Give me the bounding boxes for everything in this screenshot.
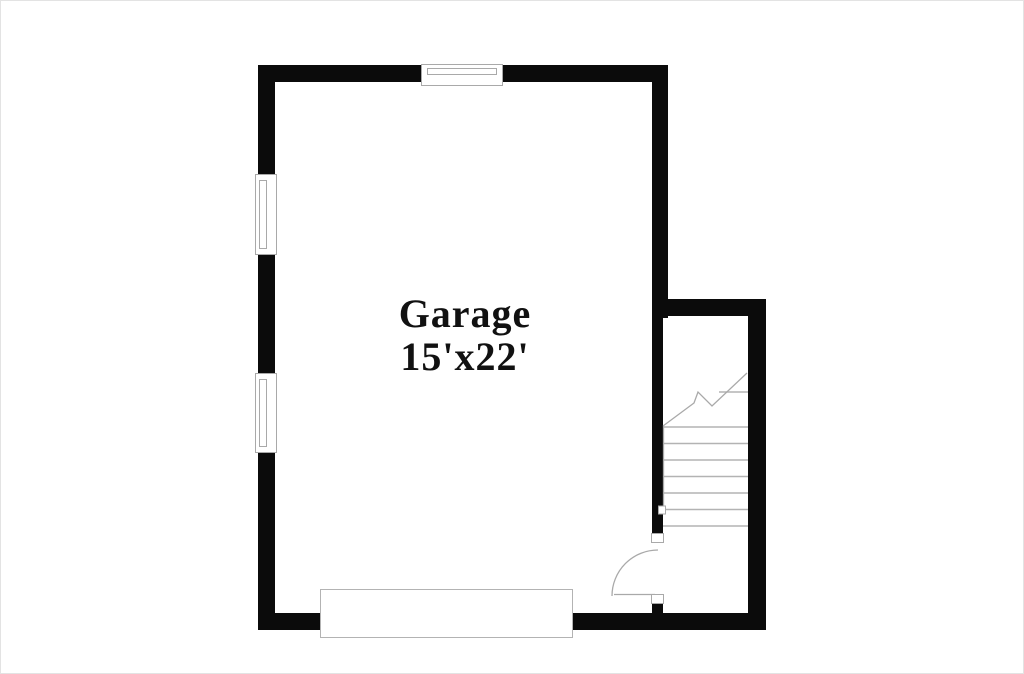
door-swing-arc bbox=[612, 550, 658, 596]
window-glass-line bbox=[259, 379, 267, 447]
wall-door-stub bbox=[652, 603, 663, 613]
wall-stairwell-left bbox=[652, 316, 663, 534]
wall-right-garage bbox=[652, 65, 668, 318]
door-swing bbox=[612, 550, 658, 596]
floor-plan: Garage 15'x22' bbox=[0, 0, 1024, 674]
wall-stairwell-right bbox=[748, 299, 766, 630]
room-dimensions: 15'x22' bbox=[315, 336, 615, 378]
stair-break-line bbox=[663, 373, 747, 426]
room-label: Garage 15'x22' bbox=[315, 292, 615, 378]
garage-door bbox=[320, 589, 573, 638]
door-jamb-top bbox=[651, 533, 664, 543]
window-glass-line bbox=[427, 68, 497, 75]
window-left-wall-lower bbox=[255, 373, 277, 453]
window-glass-line bbox=[259, 180, 267, 249]
wall-left bbox=[258, 65, 275, 630]
window-top-wall bbox=[421, 64, 503, 86]
window-left-wall-upper bbox=[255, 174, 277, 255]
room-name: Garage bbox=[315, 292, 615, 336]
staircase bbox=[659, 373, 749, 526]
door-jamb-bottom bbox=[651, 594, 664, 604]
